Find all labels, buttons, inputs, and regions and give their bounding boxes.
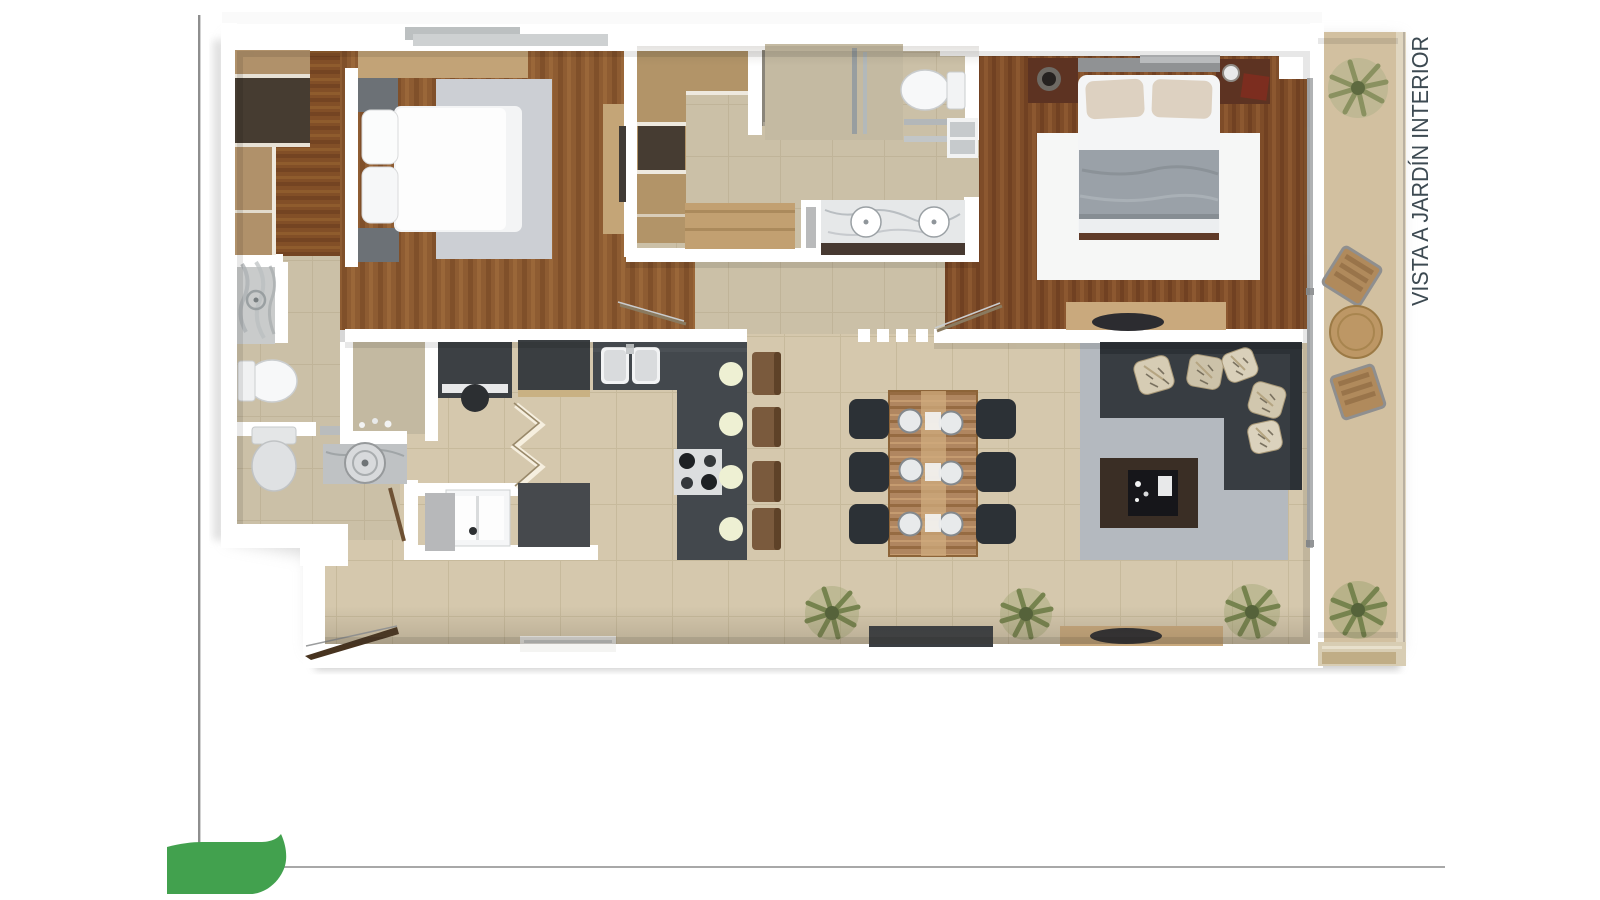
svg-text:VISTA A JARDÍN INTERIOR: VISTA A JARDÍN INTERIOR bbox=[1407, 36, 1433, 306]
